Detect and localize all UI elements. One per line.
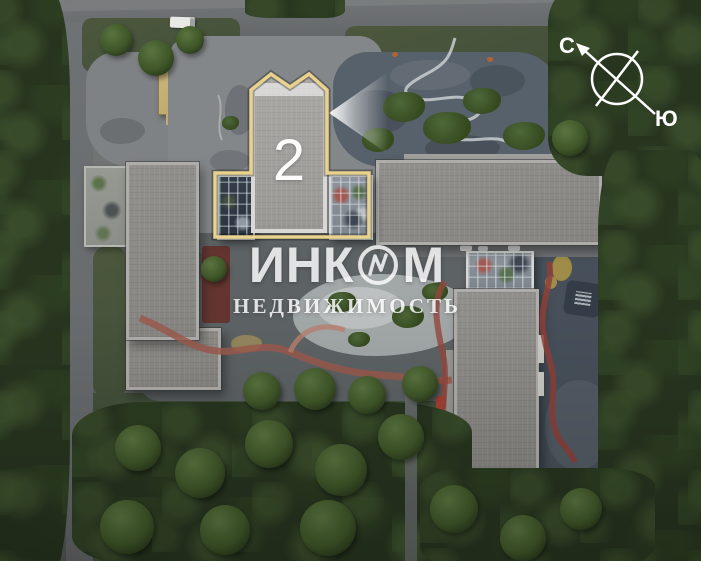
tree bbox=[100, 24, 132, 56]
balcony-strip bbox=[538, 372, 544, 396]
brand-name: ИНК М bbox=[249, 240, 445, 290]
tree bbox=[245, 420, 293, 468]
building-left bbox=[126, 162, 199, 340]
tree bbox=[348, 376, 386, 414]
tree-mass-left-edge bbox=[0, 0, 70, 561]
glass-grid bbox=[219, 177, 253, 238]
brand-text-right: М bbox=[402, 240, 445, 290]
tree bbox=[552, 120, 588, 156]
tree bbox=[175, 448, 225, 498]
brand-watermark: ИНК М НЕДВИЖИМОСТЬ bbox=[197, 240, 497, 319]
site-plan-aerial-view: 2 С Ю ИНК М НЕДВИЖИМОСТЬ bbox=[0, 0, 701, 561]
tree bbox=[560, 488, 602, 530]
tree bbox=[315, 444, 367, 496]
tower-gable-highlight bbox=[255, 83, 323, 96]
building-top-right bbox=[376, 160, 602, 245]
building-2-number[interactable]: 2 bbox=[251, 132, 327, 190]
balcony-strip bbox=[538, 335, 544, 363]
tree bbox=[200, 505, 250, 555]
glass-grid bbox=[331, 177, 371, 238]
tree bbox=[402, 366, 438, 402]
picnic-table bbox=[574, 291, 592, 306]
tree bbox=[294, 368, 336, 410]
flower-patch bbox=[487, 57, 493, 62]
tree bbox=[100, 500, 154, 554]
lawn-left-strip bbox=[93, 246, 127, 398]
flower-patch bbox=[392, 52, 398, 57]
tree bbox=[300, 500, 356, 556]
entrance-structure bbox=[84, 166, 131, 247]
brand-logo-icon bbox=[356, 243, 400, 287]
building-2-left-wing[interactable] bbox=[217, 175, 255, 240]
tree bbox=[115, 425, 161, 471]
building-2-tower[interactable]: 2 bbox=[251, 74, 327, 233]
tree bbox=[500, 515, 546, 561]
brand-text-left: ИНК bbox=[249, 240, 355, 290]
tree bbox=[243, 372, 281, 410]
tree bbox=[430, 485, 478, 533]
tree-mass-top-cluster bbox=[245, 0, 345, 18]
tree bbox=[138, 40, 174, 76]
building-2-right-wing[interactable] bbox=[329, 175, 373, 240]
brand-subtitle: НЕДВИЖИМОСТЬ bbox=[233, 294, 461, 319]
tree bbox=[176, 26, 204, 54]
building-2-marker[interactable]: 2 bbox=[213, 70, 373, 240]
tree bbox=[378, 414, 424, 460]
